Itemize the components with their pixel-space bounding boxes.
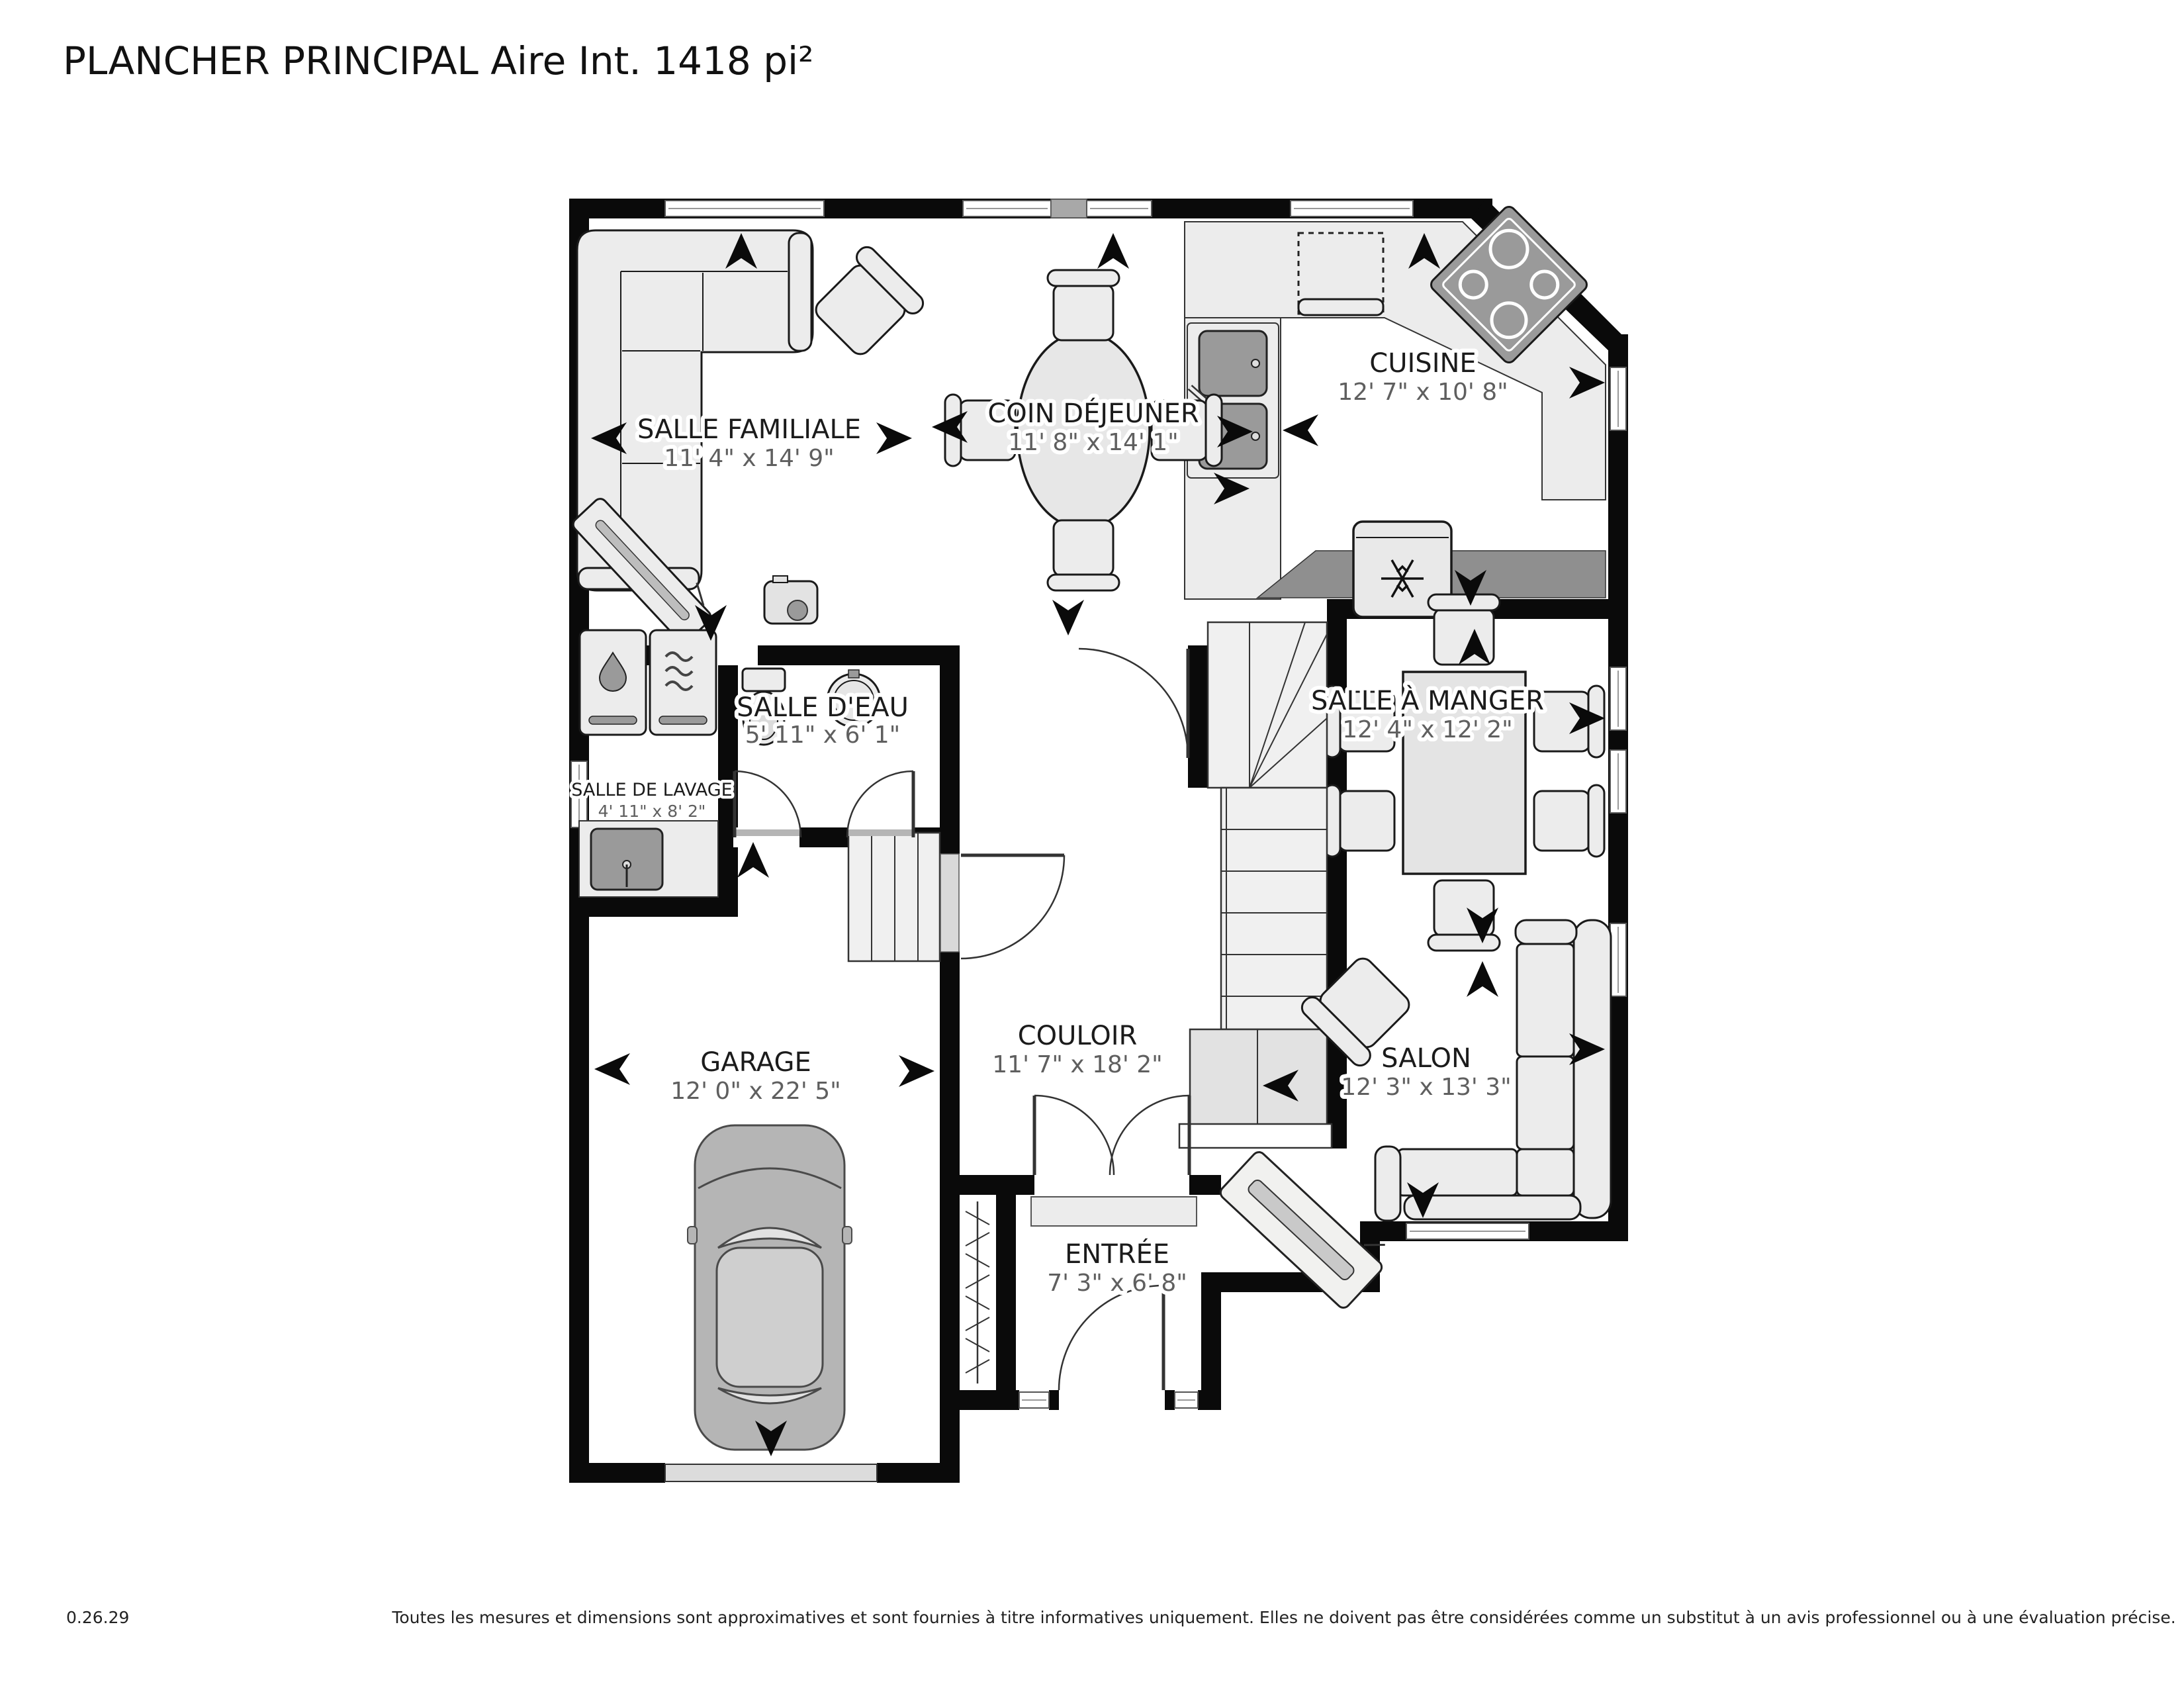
window-dining-1	[1610, 667, 1626, 730]
room-dims: 4' 11" x 8' 2"	[598, 802, 706, 821]
chair	[1324, 785, 1394, 857]
closet-rod	[966, 1201, 989, 1383]
room-name: SALLE D'EAU	[737, 692, 909, 723]
door-french-right	[1110, 1096, 1189, 1175]
door-sill	[733, 829, 799, 836]
door-sill	[848, 829, 915, 836]
stairs-run	[1221, 788, 1327, 1029]
room-name: GARAGE	[700, 1047, 811, 1078]
wall-entree-bottom	[1165, 1390, 1175, 1410]
wall-entree-bottom	[1198, 1390, 1221, 1410]
wall-garage-right	[940, 951, 960, 1483]
laundry-sink	[579, 821, 718, 897]
room-name: COULOIR	[1018, 1021, 1138, 1051]
room-label-salle-deau: SALLE D'EAU 5' 11" x 6' 1"	[737, 692, 909, 749]
window-salon-bottom	[1406, 1223, 1529, 1239]
room-name: ENTRÉE	[1065, 1238, 1169, 1270]
wall-entree-left	[996, 1195, 1016, 1410]
garage-door	[665, 1464, 877, 1481]
room-name: SALLE À MANGER	[1311, 684, 1544, 716]
footer-disclaimer: Toutes les mesures et dimensions sont ap…	[391, 1608, 2175, 1627]
wall-powder-bottom	[718, 827, 733, 847]
door-french-left	[1034, 1096, 1114, 1175]
room-dims: 12' 3" x 13' 3"	[1341, 1074, 1511, 1101]
floor-plan-page: PLANCHER PRINCIPAL Aire Int. 1418 pi²	[0, 0, 2184, 1688]
door-powder-left	[735, 771, 801, 837]
room-label-coin-dejeuner: COIN DÉJEUNER 11' 8" x 14' 1"	[987, 397, 1199, 456]
entree-threshold	[1031, 1197, 1197, 1226]
stairs-winder	[1208, 622, 1327, 788]
door-front	[1059, 1286, 1163, 1390]
arrow-up-icon	[737, 842, 769, 878]
room-label-salle-a-manger: SALLE À MANGER 12' 4" x 12' 2"	[1311, 684, 1544, 743]
room-dims: 11' 8" x 14' 1"	[1008, 429, 1178, 456]
garage-contents	[665, 1125, 877, 1481]
wall-laundry-side	[718, 847, 738, 917]
room-dims: 5' 11" x 6' 1"	[745, 722, 901, 749]
chair	[1048, 270, 1119, 340]
window-dining-2	[1610, 750, 1626, 813]
room-name: SALLE DE LAVAGE	[571, 780, 732, 800]
room-name: SALON	[1381, 1043, 1471, 1074]
arrow-up-icon	[1097, 233, 1129, 269]
room-dims: 12' 0" x 22' 5"	[670, 1078, 841, 1105]
window-breakfast	[963, 199, 1152, 218]
room-label-entree: ENTRÉE 7' 3" x 6' 8"	[1047, 1238, 1187, 1297]
room-label-salle-familiale: SALLE FAMILIALE 11' 4" x 14' 9"	[637, 414, 861, 472]
room-label-garage: GARAGE 12' 0" x 22' 5"	[670, 1047, 841, 1105]
wall-laundry-bottom	[569, 897, 735, 917]
wall-garage-bottom	[569, 1463, 665, 1483]
room-dims: 12' 4" x 12' 2"	[1342, 716, 1512, 743]
arrow-left-icon	[1283, 414, 1318, 446]
chair	[1048, 520, 1119, 590]
window-kitchen-top	[1291, 201, 1413, 216]
floor-item	[764, 576, 817, 624]
footer-version: 0.26.29	[66, 1608, 129, 1627]
wall-entree-bottom	[1049, 1390, 1059, 1410]
wall-couloir-bottom	[1189, 1175, 1221, 1195]
room-dims: 11' 4" x 14' 9"	[664, 445, 834, 472]
arrow-left-icon	[594, 1053, 630, 1085]
door-garage-entry	[961, 855, 1064, 959]
room-dims: 11' 7" x 18' 2"	[992, 1051, 1162, 1078]
room-label-salle-de-lavage: SALLE DE LAVAGE 4' 11" x 8' 2"	[571, 780, 732, 821]
washer	[580, 630, 646, 735]
car	[688, 1125, 852, 1450]
door-hall-closet	[1079, 649, 1188, 758]
wall-powder-bottom	[799, 827, 848, 847]
dining-set	[1324, 594, 1604, 951]
window-mullion	[1051, 199, 1087, 218]
wall-powder-top	[758, 645, 960, 665]
wall-couloir-bottom	[960, 1175, 1034, 1195]
window-entree-sidelight-left	[1019, 1392, 1049, 1408]
arrow-down-icon	[1052, 600, 1084, 635]
room-label-couloir: COULOIR 11' 7" x 18' 2"	[992, 1021, 1162, 1078]
room-name: COIN DÉJEUNER	[987, 397, 1199, 429]
wall-stair-east	[1327, 599, 1347, 1149]
room-dims: 12' 7" x 10' 8"	[1338, 379, 1508, 406]
dryer	[650, 630, 716, 735]
wall-garage-right	[940, 665, 960, 854]
accent-chair	[806, 244, 927, 364]
arrow-right-icon	[899, 1055, 934, 1087]
window-kitchen-right	[1610, 367, 1626, 430]
wall-stair-west	[1188, 645, 1208, 788]
window-salon-right	[1610, 923, 1626, 996]
plan-title: PLANCHER PRINCIPAL Aire Int. 1418 pi²	[63, 38, 813, 83]
chair	[1534, 785, 1604, 857]
wall-garage-bottom	[877, 1463, 960, 1483]
stairs-landing	[1179, 1124, 1332, 1148]
kitchen-fixtures	[1185, 204, 1606, 617]
room-name: SALLE FAMILIALE	[637, 414, 861, 445]
room-dims: 7' 3" x 6' 8"	[1047, 1270, 1187, 1297]
window-entree-sidelight-right	[1175, 1392, 1198, 1408]
stairs-lower	[1190, 1029, 1327, 1125]
door-threshold	[940, 854, 959, 952]
arrow-right-icon	[876, 422, 912, 454]
door-powder-right	[847, 771, 913, 837]
floor-plan: PLANCHER PRINCIPAL Aire Int. 1418 pi²	[0, 0, 2184, 1688]
window-family	[665, 201, 824, 216]
arrow-up-icon	[1467, 961, 1498, 997]
room-name: CUISINE	[1369, 348, 1476, 379]
wall-entree-right	[1201, 1272, 1221, 1410]
